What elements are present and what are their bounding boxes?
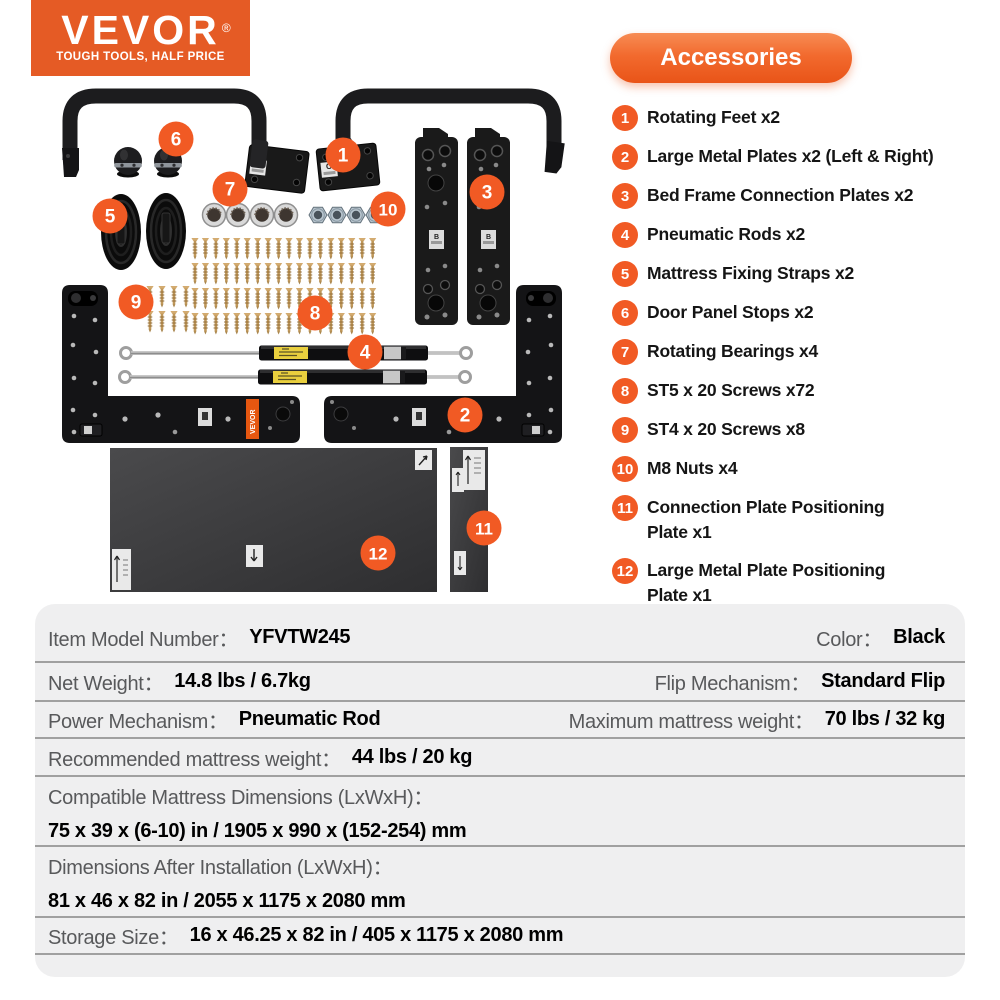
accessories-list: 1Rotating Feet x22Large Metal Plates x2 … <box>612 105 994 621</box>
accessory-number-badge: 4 <box>612 222 638 248</box>
large-metal-plate-left: VEVOR <box>62 285 300 443</box>
spec-row: Compatible Mattress Dimensions (LxWxH)：7… <box>35 777 965 847</box>
accessory-label: Rotating Feet x2 <box>647 105 780 130</box>
accessory-number-badge: 10 <box>612 456 638 482</box>
accessory-label-line: Mattress Fixing Straps x2 <box>647 261 854 286</box>
diagram-badge-number: 1 <box>338 146 349 167</box>
spec-label: Power Mechanism： <box>48 705 228 734</box>
spec-value: YFVTW245 <box>249 626 350 649</box>
accessory-number-badge: 3 <box>612 183 638 209</box>
spec-value: 70 lbs / 32 kg <box>825 708 945 731</box>
spec-value: Standard Flip <box>821 670 945 693</box>
diagram-badge-number: 7 <box>225 180 236 201</box>
accessory-label: Rotating Bearings x4 <box>647 339 818 364</box>
parts-diagram: C B <box>0 0 600 605</box>
spec-row: Net Weight：14.8 lbs / 6.7kgFlip Mechanis… <box>35 663 965 702</box>
accessory-label-line: M8 Nuts x4 <box>647 456 737 481</box>
spec-cell: Storage Size：16 x 46.25 x 82 in / 405 x … <box>48 921 563 950</box>
diagram-badge-number: 2 <box>460 406 471 427</box>
diagram-badge: 2 <box>448 398 483 433</box>
spec-label: Color： <box>816 623 882 652</box>
accessory-number-badge: 7 <box>612 339 638 365</box>
spec-cell: Flip Mechanism：Standard Flip <box>655 667 945 696</box>
accessory-label-line: Rotating Bearings x4 <box>647 339 818 364</box>
accessory-label-line: Large Metal Plate Positioning <box>647 558 885 583</box>
accessory-label-line: Bed Frame Connection Plates x2 <box>647 183 913 208</box>
spec-cell: Net Weight：14.8 lbs / 6.7kg <box>48 667 311 696</box>
spec-cell: Color：Black <box>816 623 945 652</box>
positioning-panel-large <box>110 448 437 592</box>
accessory-label: Large Metal Plates x2 (Left & Right) <box>647 144 933 169</box>
connection-plates <box>415 128 510 325</box>
accessory-label: Pneumatic Rods x2 <box>647 222 805 247</box>
spec-label: Dimensions After Installation (LxWxH)： <box>48 857 392 879</box>
spec-label: Compatible Mattress Dimensions (LxWxH)： <box>48 787 433 809</box>
spec-cell: Maximum mattress weight：70 lbs / 32 kg <box>569 705 945 734</box>
diagram-badge: 7 <box>213 172 248 207</box>
accessory-label-line: Plate x1 <box>647 520 884 545</box>
diagram-badge-number: 5 <box>105 207 116 228</box>
spec-value: 14.8 lbs / 6.7kg <box>174 670 310 693</box>
spec-value: 81 x 46 x 82 in / 2055 x 1175 x 2080 mm <box>48 890 405 912</box>
accessory-label-line: Door Panel Stops x2 <box>647 300 813 325</box>
spec-value: 16 x 46.25 x 82 in / 405 x 1175 x 2080 m… <box>190 924 564 947</box>
spec-row: Recommended mattress weight：44 lbs / 20 … <box>35 739 965 777</box>
accessory-number-badge: 6 <box>612 300 638 326</box>
accessory-label: M8 Nuts x4 <box>647 456 737 481</box>
accessory-label-line: Rotating Feet x2 <box>647 105 780 130</box>
diagram-badge: 9 <box>119 285 154 320</box>
diagram-badge-number: 8 <box>310 304 321 325</box>
accessory-item: 1Rotating Feet x2 <box>612 105 994 131</box>
diagram-badge-number: 10 <box>379 201 398 220</box>
accessory-number-badge: 5 <box>612 261 638 287</box>
diagram-badge-number: 4 <box>360 343 371 364</box>
accessory-label: Door Panel Stops x2 <box>647 300 813 325</box>
spec-label: Storage Size： <box>48 921 179 950</box>
accessory-number-badge: 11 <box>612 495 638 521</box>
spec-cell: Recommended mattress weight：44 lbs / 20 … <box>48 743 472 772</box>
diagram-badge: 5 <box>93 199 128 234</box>
diagram-badge-number: 12 <box>369 545 388 564</box>
spec-row: Item Model Number：YFVTW245Color：Black <box>35 614 965 663</box>
diagram-badge: 8 <box>298 296 333 331</box>
accessory-label: ST4 x 20 Screws x8 <box>647 417 805 442</box>
spec-value: Black <box>893 626 945 649</box>
spec-label: Net Weight： <box>48 667 163 696</box>
st4-screws-grid <box>146 286 189 333</box>
accessory-label: Mattress Fixing Straps x2 <box>647 261 854 286</box>
diagram-badge: 6 <box>159 122 194 157</box>
spec-cell: Power Mechanism：Pneumatic Rod <box>48 705 380 734</box>
accessory-item: 7Rotating Bearings x4 <box>612 339 994 365</box>
accessory-number-badge: 2 <box>612 144 638 170</box>
spec-row: Dimensions After Installation (LxWxH)：81… <box>35 847 965 918</box>
parts-diagram-svg: C B <box>0 0 600 605</box>
accessory-label-line: Connection Plate Positioning <box>647 495 884 520</box>
spec-value: 75 x 39 x (6-10) in / 1905 x 990 x (152-… <box>48 820 466 842</box>
accessory-item: 12Large Metal Plate PositioningPlate x1 <box>612 558 994 608</box>
accessory-label: Connection Plate PositioningPlate x1 <box>647 495 884 545</box>
accessory-label-line: ST5 x 20 Screws x72 <box>647 378 814 403</box>
accessory-number-badge: 8 <box>612 378 638 404</box>
spec-value: Pneumatic Rod <box>239 708 381 731</box>
accessory-label-line: Large Metal Plates x2 (Left & Right) <box>647 144 933 169</box>
diagram-badge-number: 6 <box>171 130 182 151</box>
accessory-item: 9ST4 x 20 Screws x8 <box>612 417 994 443</box>
accessory-item: 10M8 Nuts x4 <box>612 456 994 482</box>
accessory-item: 5Mattress Fixing Straps x2 <box>612 261 994 287</box>
diagram-badge: 12 <box>361 536 396 571</box>
accessory-item: 3Bed Frame Connection Plates x2 <box>612 183 994 209</box>
spec-label: Maximum mattress weight： <box>569 705 814 734</box>
accessory-label-line: ST4 x 20 Screws x8 <box>647 417 805 442</box>
st5-screws-grid <box>191 238 376 335</box>
spec-row: Storage Size：16 x 46.25 x 82 in / 405 x … <box>35 918 965 955</box>
spec-value: 44 lbs / 20 kg <box>352 746 472 769</box>
spec-label: Item Model Number： <box>48 623 238 652</box>
accessory-label-line: Pneumatic Rods x2 <box>647 222 805 247</box>
spec-label: Flip Mechanism： <box>655 667 811 696</box>
spec-row: Power Mechanism：Pneumatic RodMaximum mat… <box>35 702 965 739</box>
diagram-badge: 11 <box>467 511 502 546</box>
accessory-item: 4Pneumatic Rods x2 <box>612 222 994 248</box>
accessory-label: ST5 x 20 Screws x72 <box>647 378 814 403</box>
diagram-badge: 4 <box>348 335 383 370</box>
accessory-number-badge: 9 <box>612 417 638 443</box>
rotating-bearings <box>203 204 298 227</box>
diagram-badge-number: 9 <box>131 293 142 314</box>
accessory-item: 8ST5 x 20 Screws x72 <box>612 378 994 404</box>
pneumatic-rods <box>120 346 472 385</box>
diagram-badge: 10 <box>371 192 406 227</box>
accessory-number-badge: 1 <box>612 105 638 131</box>
spec-label: Recommended mattress weight： <box>48 743 341 772</box>
accessory-item: 11Connection Plate PositioningPlate x1 <box>612 495 994 545</box>
accessory-number-badge: 12 <box>612 558 638 584</box>
spec-table: Item Model Number：YFVTW245Color：BlackNet… <box>35 604 965 977</box>
accessory-item: 2Large Metal Plates x2 (Left & Right) <box>612 144 994 170</box>
accessory-label: Bed Frame Connection Plates x2 <box>647 183 913 208</box>
accessory-label: Large Metal Plate PositioningPlate x1 <box>647 558 885 608</box>
diagram-badge-number: 3 <box>482 183 493 204</box>
vevor-plate-label: VEVOR <box>250 409 257 434</box>
diagram-badge: 3 <box>470 175 505 210</box>
spec-cell: Item Model Number：YFVTW245 <box>48 623 350 652</box>
diagram-badge-number: 11 <box>475 520 493 539</box>
accessory-item: 6Door Panel Stops x2 <box>612 300 994 326</box>
accessories-title: Accessories <box>610 33 852 83</box>
diagram-badge: 1 <box>326 138 361 173</box>
